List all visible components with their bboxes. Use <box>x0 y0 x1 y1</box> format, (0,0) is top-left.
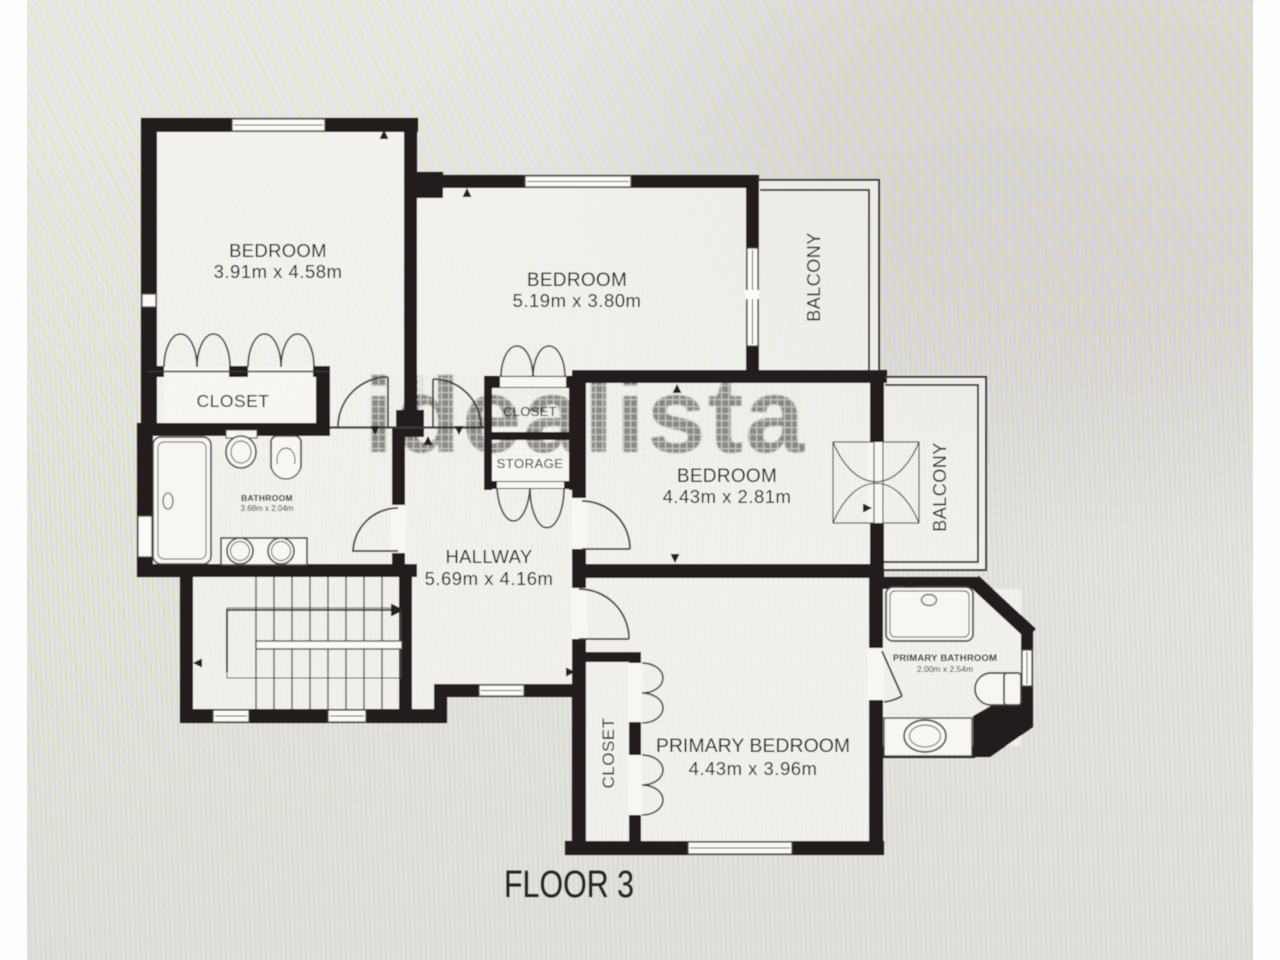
svg-text:2.00m x 2.54m: 2.00m x 2.54m <box>917 664 973 674</box>
svg-text:CLOSET: CLOSET <box>599 717 618 788</box>
svg-text:STORAGE: STORAGE <box>497 456 564 471</box>
svg-text:4.43m x 2.81m: 4.43m x 2.81m <box>663 486 792 507</box>
svg-text:HALLWAY: HALLWAY <box>445 546 532 567</box>
svg-text:5.19m x 3.80m: 5.19m x 3.80m <box>513 290 642 311</box>
svg-text:4.43m x 3.96m: 4.43m x 3.96m <box>689 758 818 779</box>
svg-text:CLOSET: CLOSET <box>503 404 557 419</box>
svg-text:BATHROOM: BATHROOM <box>241 493 293 503</box>
svg-text:PRIMARY BATHROOM: PRIMARY BATHROOM <box>893 653 997 664</box>
svg-text:BEDROOM: BEDROOM <box>229 240 327 261</box>
svg-text:BEDROOM: BEDROOM <box>527 270 627 291</box>
svg-text:PRIMARY BEDROOM: PRIMARY BEDROOM <box>656 735 850 757</box>
svg-text:BALCONY: BALCONY <box>804 232 824 322</box>
svg-text:FLOOR 3: FLOOR 3 <box>504 864 634 906</box>
svg-text:CLOSET: CLOSET <box>196 391 269 411</box>
svg-text:3.91m x 4.58m: 3.91m x 4.58m <box>214 261 343 282</box>
svg-text:5.69m x 4.16m: 5.69m x 4.16m <box>425 568 554 589</box>
svg-text:3.68m x 2.04m: 3.68m x 2.04m <box>241 504 294 513</box>
svg-text:BEDROOM: BEDROOM <box>677 466 777 487</box>
svg-text:BALCONY: BALCONY <box>930 442 950 532</box>
